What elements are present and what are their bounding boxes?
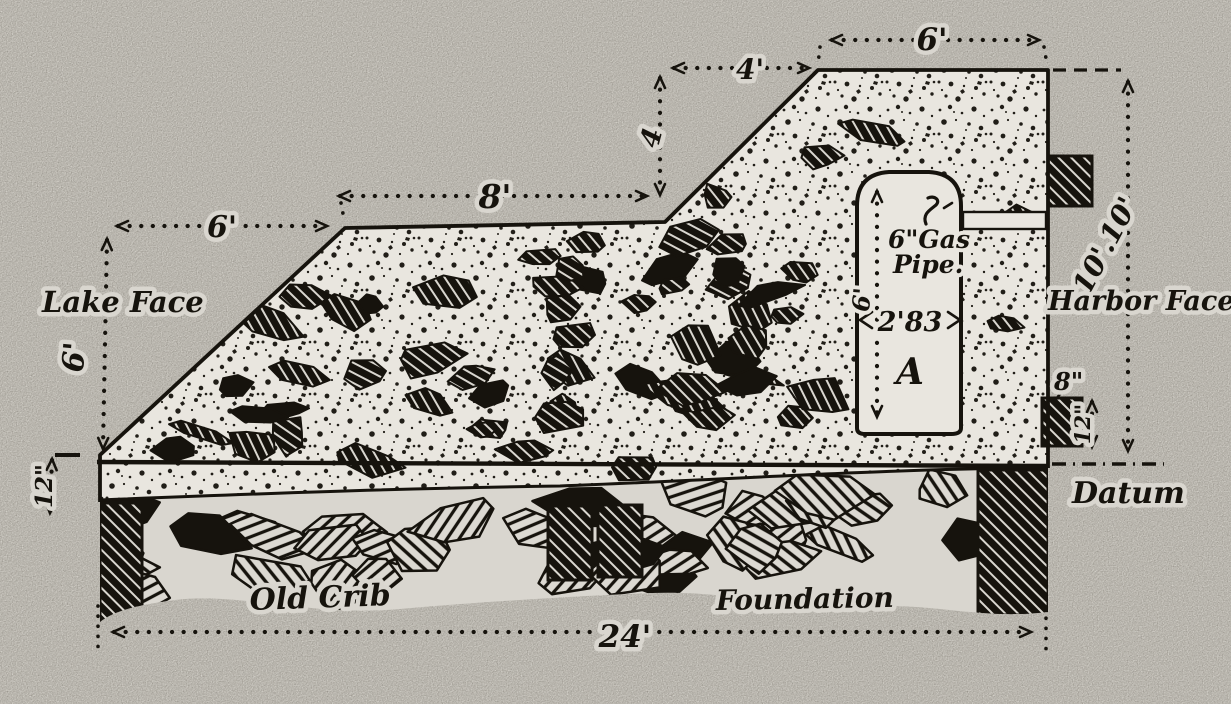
dim-lake-slope-run: 6' — [207, 210, 237, 245]
dim-berm-width: 8' — [477, 177, 511, 216]
crib-section-figure: 6' 4' 4 8' 6' 6' 12" 10'.10' 8" 12" 24' … — [0, 0, 1231, 704]
label-old-crib: Old Crib — [249, 578, 391, 618]
label-datum: Datum — [1071, 476, 1185, 511]
dim-fender-height: 12" — [1070, 404, 1095, 444]
dim-well-depth: 6' — [846, 286, 877, 312]
dim-well-width: 2'83 — [877, 307, 943, 338]
joint-band — [963, 212, 1046, 229]
label-well-letter: A — [893, 351, 924, 393]
dim-lake-face-height: 6' — [56, 341, 93, 374]
dim-top-width: 6' — [916, 22, 947, 58]
dim-fender-width: 8" — [1053, 367, 1083, 396]
label-lake-face: Lake Face — [41, 285, 204, 319]
dim-upper-slope-run: 4' — [736, 53, 764, 86]
dim-base-width: 24' — [598, 619, 652, 655]
dim-lake-toe-depth: 12" — [31, 464, 58, 508]
fender-block-upper — [1048, 156, 1092, 206]
stone — [612, 457, 656, 481]
label-foundation: Foundation — [715, 581, 895, 617]
label-gas-pipe-line2: Pipe. — [892, 250, 963, 279]
label-harbor-face: Harbor Face — [1047, 286, 1231, 317]
section-drawing: 6' 4' 4 8' 6' 6' 12" 10'.10' 8" 12" 24' … — [0, 0, 1231, 704]
